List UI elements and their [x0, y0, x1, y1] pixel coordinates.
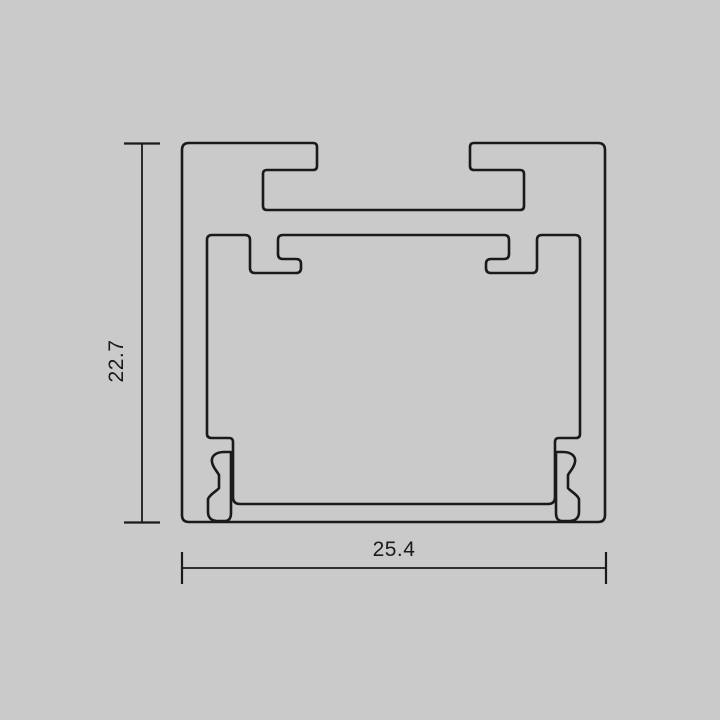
dimension-width: 25.4 [182, 538, 606, 584]
screw-channel-left [208, 452, 231, 521]
profile-cross-section-drawing: 22.7 25.4 [0, 0, 720, 720]
profile-inner-cavity-contour [207, 235, 580, 504]
screw-channel-right [556, 452, 579, 521]
profile-geometry [182, 143, 605, 522]
height-dimension-label: 22.7 [105, 340, 128, 383]
profile-outer-contour [182, 143, 605, 522]
width-dimension-label: 25.4 [373, 538, 416, 561]
technical-drawing-canvas: 22.7 25.4 [0, 0, 720, 720]
dimension-height: 22.7 [105, 144, 160, 523]
